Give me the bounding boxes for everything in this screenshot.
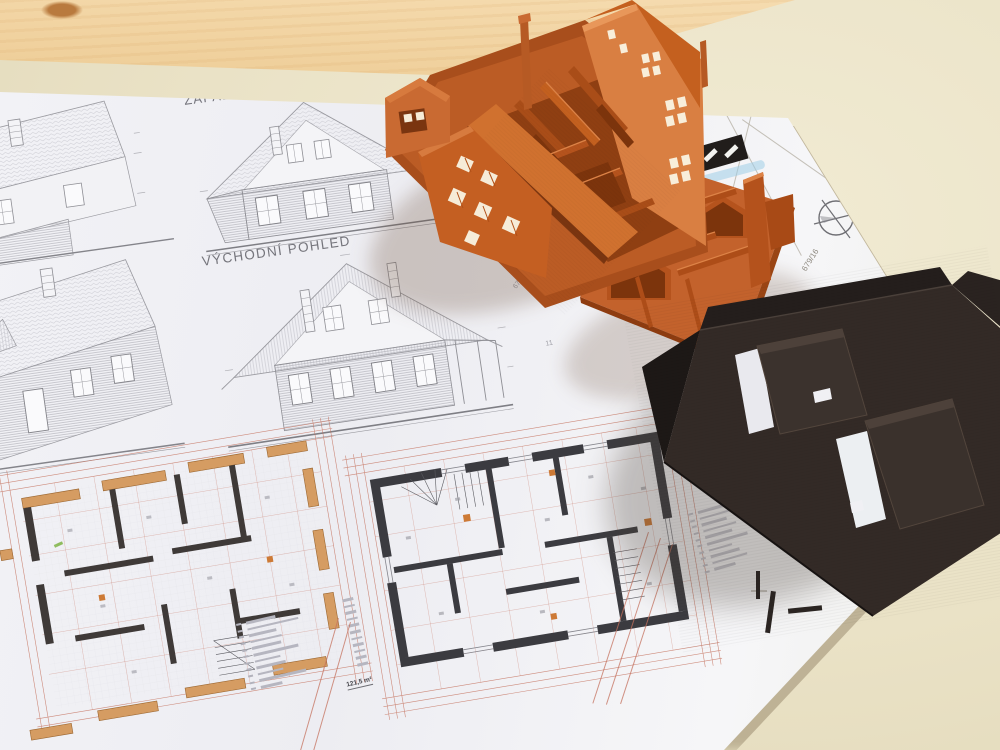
dim-note-b: 11 (545, 339, 554, 347)
north-arrow-icon (806, 192, 866, 252)
photo-scene: ZÁPADNÍ POHLED VÝCHODNÍ POHLED (0, 0, 1000, 750)
model-dark-roof (610, 255, 1000, 655)
elevation-left-partial-1 (0, 88, 189, 271)
